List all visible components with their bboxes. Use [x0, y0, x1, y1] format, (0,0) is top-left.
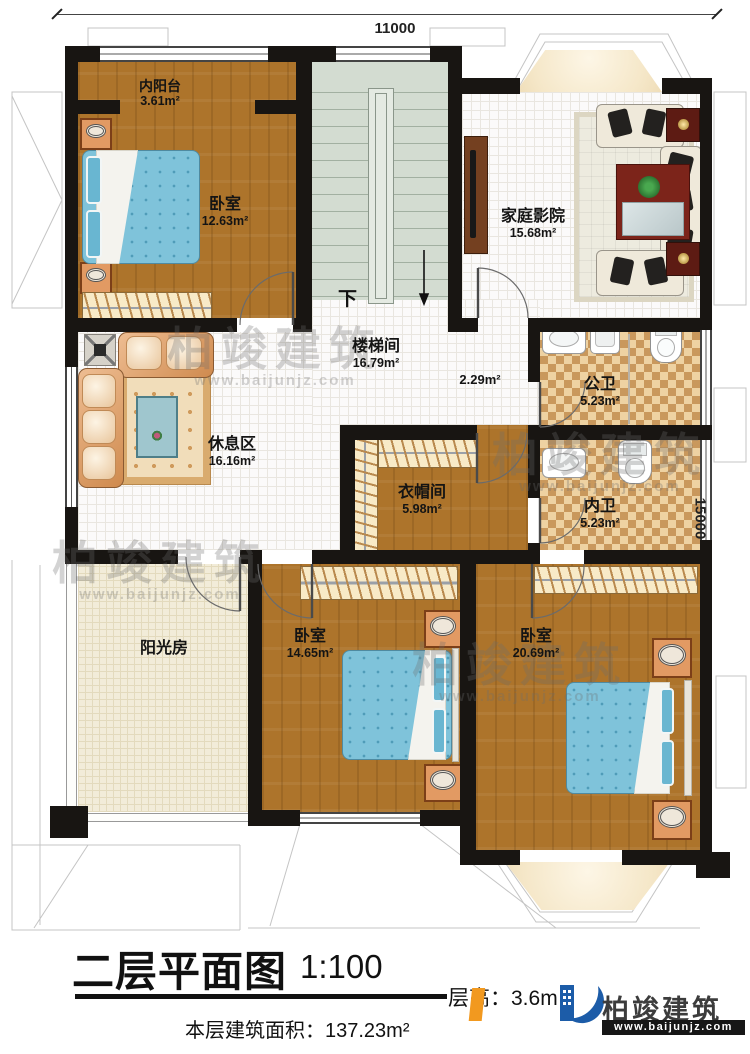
wall: [340, 425, 355, 564]
wall: [420, 810, 476, 826]
floor-area-value: 137.23m²: [325, 1020, 410, 1042]
rest-coffee-table: [136, 396, 178, 458]
floor-height-label: 层高：: [448, 987, 511, 1010]
logo-building-blue: [560, 985, 574, 1021]
floor-area: 本层建筑面积：137.23m²: [185, 1014, 410, 1043]
bay-window-bottom: [505, 862, 670, 910]
room-name: 楼梯间: [330, 338, 422, 356]
wall: [65, 318, 237, 332]
wall: [528, 318, 712, 332]
title-rule: [75, 994, 447, 999]
sofa-cushion: [82, 446, 116, 480]
corner-tv-stand: [84, 334, 116, 366]
floor-height-value: 3.6m: [511, 987, 558, 1010]
window: [100, 46, 268, 62]
room-label-rest-area: 休息区 16.16m²: [182, 436, 282, 469]
room-name: 阳光房: [118, 640, 210, 658]
pillow: [432, 708, 446, 754]
room-name: 卧室: [488, 628, 584, 646]
bay-window-top: [516, 50, 662, 92]
nightstand: [652, 638, 692, 678]
room-name: 休息区: [182, 436, 282, 454]
wall: [312, 46, 336, 62]
room-name: 衣帽间: [378, 484, 466, 502]
wardrobe: [378, 438, 478, 468]
sofa-cushion: [82, 410, 116, 444]
wardrobe: [300, 566, 458, 600]
floor-area-label: 本层建筑面积：: [185, 1020, 325, 1042]
room-name: 卧室: [262, 628, 358, 646]
wall: [448, 46, 462, 332]
corridor-area-label: 2.29m²: [448, 372, 512, 387]
stairs-down-label: 下: [338, 284, 357, 311]
potted-plant: [638, 176, 660, 198]
sink: [542, 448, 586, 478]
room-label-balcony: 内阳台 3.61m²: [105, 78, 215, 108]
wall: [340, 425, 477, 440]
room-area: 15.68m²: [478, 226, 588, 240]
wardrobe: [534, 566, 698, 594]
room-area: 20.69m²: [488, 646, 584, 660]
sofa-cushion: [82, 374, 116, 408]
window: [300, 812, 420, 824]
corner-column: [696, 852, 730, 878]
headboard: [452, 648, 459, 762]
toilet: [618, 440, 652, 484]
wall: [312, 550, 528, 564]
wall: [700, 425, 712, 440]
room-area: 3.61m²: [105, 94, 215, 108]
wall: [460, 550, 476, 850]
floor-height: 层高：3.6m: [448, 982, 558, 1012]
wall: [700, 78, 712, 330]
nightstand: [80, 118, 112, 150]
room-area: 5.98m²: [378, 502, 466, 516]
pillow: [660, 688, 674, 734]
tv-screen: [470, 150, 476, 238]
room-area: 5.23m²: [560, 394, 640, 408]
wall: [528, 318, 540, 382]
room-label-sunroom: 阳光房: [118, 640, 210, 658]
room-area: 14.65m²: [262, 646, 358, 660]
room-area: 5.23m²: [560, 516, 640, 530]
headboard: [684, 680, 692, 796]
end-table: [666, 108, 700, 142]
dimension-line-top: [57, 14, 717, 15]
sunroom-floor: [78, 564, 248, 812]
wall: [293, 318, 312, 332]
plan-scale: 1:100: [300, 948, 383, 986]
end-table: [666, 242, 700, 276]
pillow: [432, 656, 446, 702]
room-label-cloakroom: 衣帽间 5.98m²: [378, 484, 466, 517]
room-name: 家庭影院: [478, 208, 588, 226]
wall: [460, 850, 520, 865]
room-name: 内卫: [560, 498, 640, 516]
dimension-right-value: 15000: [692, 479, 709, 559]
plan-title: 二层平面图: [72, 938, 287, 999]
room-name: 卧室: [175, 196, 275, 214]
room-label-public-bath: 公卫 5.23m²: [560, 376, 640, 409]
wall: [448, 318, 478, 332]
wall: [460, 78, 520, 94]
wardrobe: [352, 438, 378, 552]
window: [65, 367, 78, 507]
room-label-inner-bath: 内卫 5.23m²: [560, 498, 640, 531]
wall: [700, 540, 712, 865]
room-label-bedroom-tl: 卧室 12.63m²: [175, 196, 275, 229]
window: [700, 330, 712, 425]
room-area: 12.63m²: [175, 214, 275, 228]
nightstand: [80, 262, 112, 294]
nightstand: [652, 800, 692, 840]
room-label-bedroom-br: 卧室 20.69m²: [488, 628, 584, 661]
room-label-stairwell: 楼梯间 16.79m²: [330, 338, 422, 371]
corner-column: [50, 806, 88, 838]
window: [336, 46, 430, 62]
wall: [296, 46, 312, 332]
stair-center-rail: [368, 88, 394, 304]
room-label-bedroom-bm: 卧室 14.65m²: [262, 628, 358, 661]
wall: [528, 425, 700, 440]
wall: [65, 507, 78, 553]
sunroom-glass-wall: [66, 564, 77, 806]
room-name: 内阳台: [105, 78, 215, 94]
pillow: [660, 740, 674, 786]
nightstand: [424, 610, 462, 648]
pillow: [86, 210, 102, 258]
pillow: [86, 156, 102, 204]
logo-swoosh: [560, 986, 604, 1023]
wall: [248, 810, 300, 826]
wall: [248, 550, 262, 812]
table-glass: [622, 202, 684, 236]
wall: [65, 550, 178, 564]
logo-url-bar: www.baijunjz.com: [602, 1020, 745, 1035]
sofa-cushion: [126, 336, 162, 370]
floor-plan-canvas: 内阳台 3.61m² 卧室 12.63m² 楼梯间 16.79m² 家庭影院 1…: [0, 0, 750, 1054]
room-label-home-theater: 家庭影院 15.68m²: [478, 208, 588, 241]
dimension-top-value: 11000: [350, 20, 440, 37]
nightstand: [424, 764, 462, 802]
room-area: 16.79m²: [330, 356, 422, 370]
sofa-cushion: [166, 336, 202, 370]
room-area: 16.16m²: [182, 454, 282, 468]
wall: [528, 550, 534, 564]
room-name: 公卫: [560, 376, 640, 394]
sunroom-glass-wall: [88, 813, 248, 822]
